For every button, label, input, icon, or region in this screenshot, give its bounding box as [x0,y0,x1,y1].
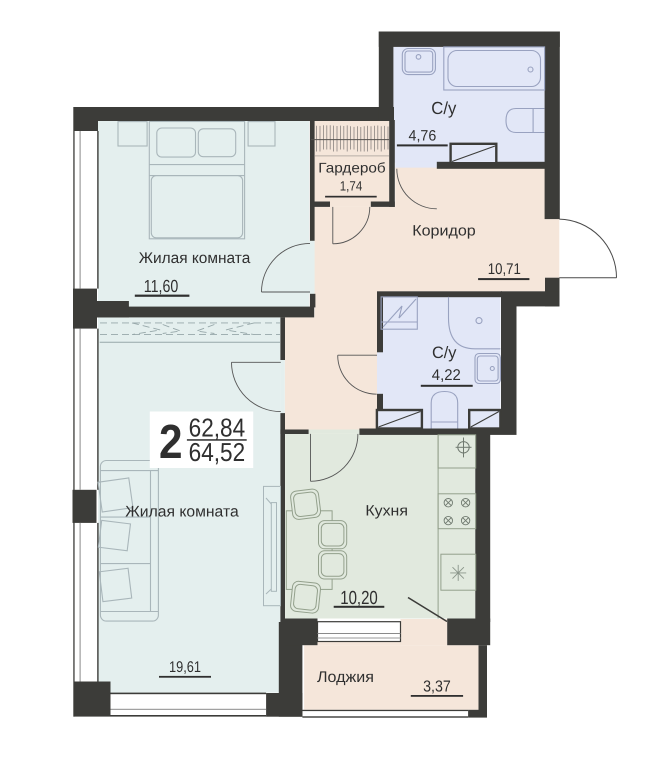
svg-text:64,52: 64,52 [189,437,246,467]
svg-text:Жилая комната: Жилая комната [139,250,251,267]
svg-text:С/у: С/у [432,344,457,362]
svg-text:Гардероб: Гардероб [318,160,385,176]
svg-text:Жилая комната: Жилая комната [125,504,239,521]
svg-text:3,37: 3,37 [423,679,451,696]
svg-text:11,60: 11,60 [144,276,179,296]
svg-text:С/у: С/у [431,98,456,118]
svg-text:19,61: 19,61 [169,659,201,676]
svg-text:4,22: 4,22 [432,367,461,384]
svg-text:4,76: 4,76 [409,128,437,145]
svg-text:Лоджия: Лоджия [317,669,374,686]
svg-text:10,20: 10,20 [340,588,378,609]
svg-text:10,71: 10,71 [488,261,521,278]
svg-text:1,74: 1,74 [340,179,363,194]
svg-text:Коридор: Коридор [412,223,476,240]
svg-text:Кухня: Кухня [365,503,408,520]
svg-text:2: 2 [159,416,183,469]
